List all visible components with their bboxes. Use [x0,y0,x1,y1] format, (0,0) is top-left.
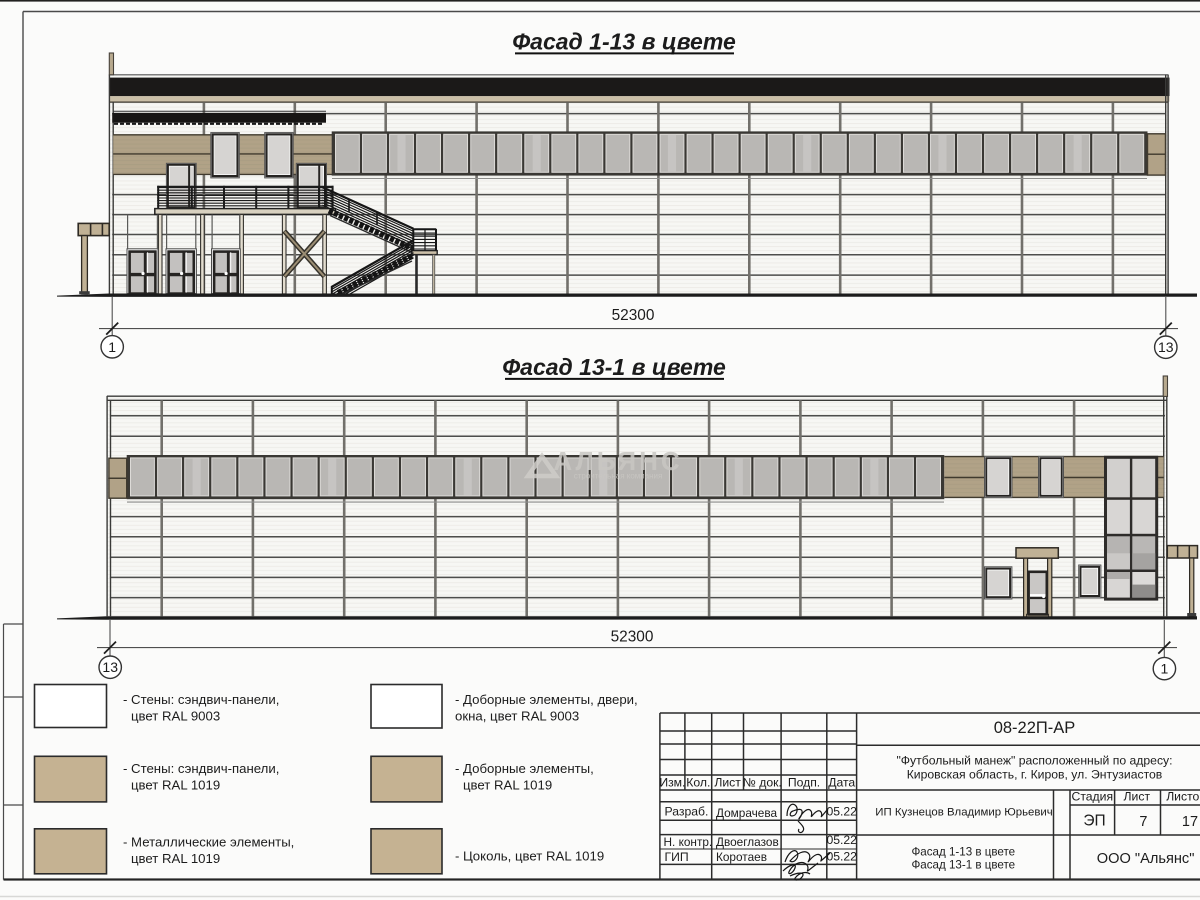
svg-text:Н. контр.: Н. контр. [664,835,713,849]
svg-text:строительная компания: строительная компания [574,472,663,481]
svg-text:1: 1 [108,339,116,355]
svg-text:- Доборные элементы, двери,: - Доборные элементы, двери, [455,692,638,707]
svg-text:17: 17 [1182,814,1198,830]
svg-text:цвет RAL 9003: цвет RAL 9003 [131,709,220,724]
svg-text:Фасад 13-1 в цвете: Фасад 13-1 в цвете [911,859,1015,872]
svg-text:13: 13 [102,659,118,675]
svg-text:Двоеглазов: Двоеглазов [716,835,779,849]
svg-text:Изм.: Изм. [659,776,685,790]
svg-text:05.22: 05.22 [826,805,857,819]
svg-text:"Футбольный манеж" расположенн: "Футбольный манеж" расположенный по адре… [896,754,1172,768]
svg-text:13: 13 [1158,339,1174,355]
svg-text:ИП Кузнецов Владимир Юрьевич: ИП Кузнецов Владимир Юрьевич [875,807,1052,819]
svg-text:1: 1 [1161,661,1169,677]
svg-text:№ док.: № док. [743,776,782,790]
svg-text:Кол.: Кол. [686,776,710,790]
svg-text:Коротаев: Коротаев [716,850,767,864]
svg-text:Кировская область, г. Киров, у: Кировская область, г. Киров, ул. Энтузиа… [907,768,1163,782]
svg-text:- Металлические элементы,: - Металлические элементы, [123,835,294,850]
svg-text:05.22: 05.22 [826,833,857,847]
svg-text:Подп.: Подп. [788,776,820,790]
svg-text:Стадия: Стадия [1072,790,1114,804]
svg-text:05.22: 05.22 [826,850,857,864]
svg-text:Фасад 1-13 в цвете: Фасад 1-13 в цвете [911,846,1015,859]
svg-text:ЭП: ЭП [1083,813,1105,830]
svg-text:Листов: Листов [1166,790,1200,804]
svg-text:Дата: Дата [828,776,855,790]
svg-text:окна, цвет RAL 9003: окна, цвет RAL 9003 [455,709,579,724]
svg-text:- Стены: сэндвич-панели,: - Стены: сэндвич-панели, [123,761,279,776]
svg-text:- Цоколь, цвет RAL 1019: - Цоколь, цвет RAL 1019 [455,849,604,864]
svg-text:ГИП: ГИП [665,850,689,864]
svg-text:ООО "Альянс": ООО "Альянс" [1097,851,1195,867]
svg-text:52300: 52300 [612,307,655,324]
svg-text:- Стены: сэндвич-панели,: - Стены: сэндвич-панели, [123,692,279,707]
svg-text:- Доборные элементы,: - Доборные элементы, [455,761,594,776]
svg-text:цвет RAL 1019: цвет RAL 1019 [131,778,220,793]
svg-text:7: 7 [1139,814,1147,830]
svg-text:цвет RAL 1019: цвет RAL 1019 [131,851,220,866]
svg-text:Фасад 13-1 в цвете: Фасад 13-1 в цвете [502,354,726,380]
svg-text:цвет RAL 1019: цвет RAL 1019 [463,778,552,793]
svg-text:Фасад 1-13 в цвете: Фасад 1-13 в цвете [512,29,736,55]
svg-text:52300: 52300 [611,629,654,646]
svg-text:Лист: Лист [714,776,741,790]
svg-text:Лист: Лист [1124,790,1151,804]
svg-text:Домрачева: Домрачева [716,806,777,820]
svg-text:08-22П-АР: 08-22П-АР [994,719,1076,737]
svg-text:Разраб.: Разраб. [665,805,709,819]
